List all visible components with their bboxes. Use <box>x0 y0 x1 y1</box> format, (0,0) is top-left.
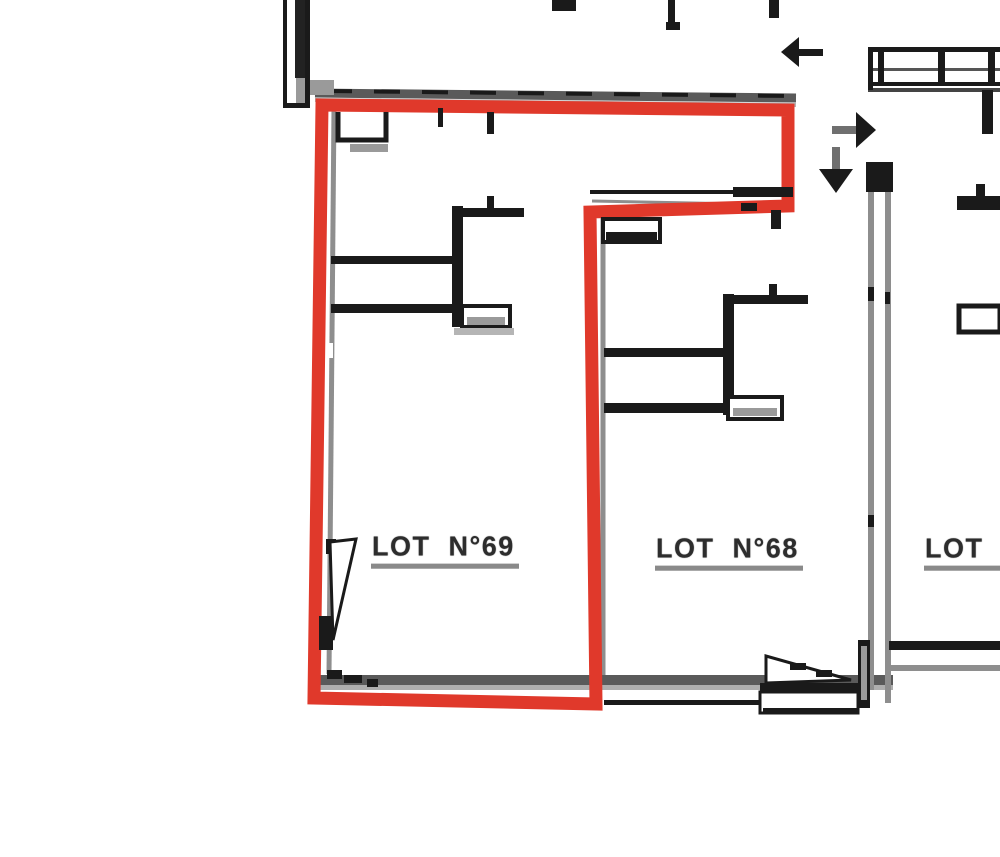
lot-69-door-swing <box>319 539 356 650</box>
lot-68-interior-walls <box>604 284 808 419</box>
top-edge-wall-stubs <box>552 0 779 30</box>
arrow-right-icon <box>832 112 876 148</box>
outer-wall-top-left <box>283 0 310 108</box>
arrow-left-icon <box>781 37 823 67</box>
wall-stub-below-window <box>982 90 993 134</box>
right-edge-wall-stubs <box>957 184 1000 332</box>
lot-right-partial-label: LOT <box>924 534 1000 571</box>
floor-plan-canvas <box>0 0 1000 857</box>
lot-69-interior-walls <box>331 108 524 335</box>
neighbor-lot-wall <box>889 641 1000 650</box>
gray-wall-linework <box>308 80 1000 703</box>
arrow-down-icon <box>819 147 853 193</box>
lot-68-label: LOT N°68 <box>655 534 803 571</box>
window-band-top-right <box>868 47 1000 92</box>
lot-69-label: LOT N°69 <box>371 532 519 569</box>
floor-plan: LOT N°69 LOT N°68 LOT <box>0 0 1000 857</box>
